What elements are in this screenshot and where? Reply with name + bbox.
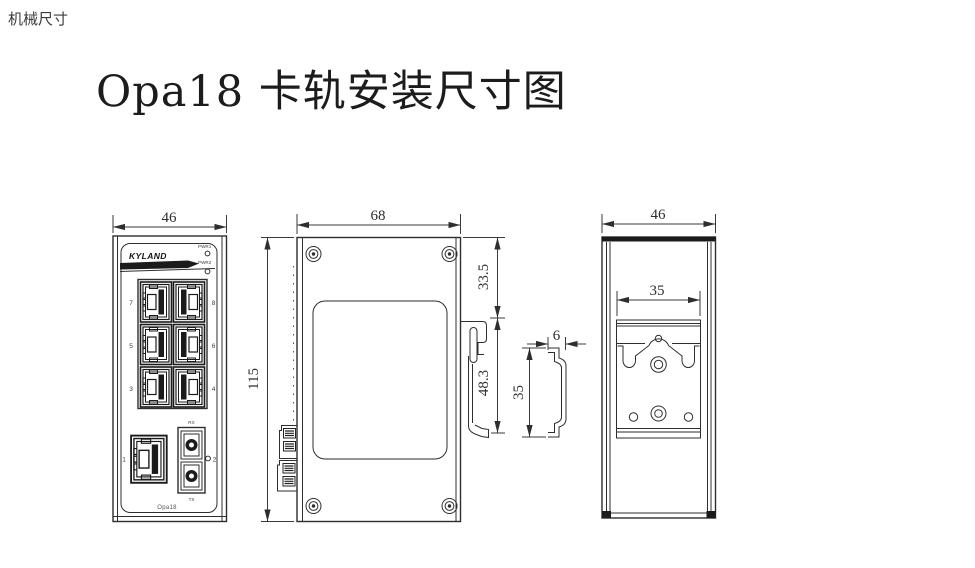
dim-rail-top-offset: 33.5 xyxy=(476,264,492,290)
clip-hole-icon xyxy=(684,413,692,421)
back-view xyxy=(602,237,716,518)
port-label-6: 6 xyxy=(212,343,216,350)
page-title: Opa18 卡轨安装尺寸图 xyxy=(96,67,567,117)
port-label-7: 7 xyxy=(129,300,133,307)
front-view: KYLAND PWR1 PWR2 7 8 5 6 3 4 1 xyxy=(113,236,227,522)
dim-front-width: 46 xyxy=(162,210,178,226)
screw-icon xyxy=(306,247,321,262)
model-label: Opa18 xyxy=(157,505,177,511)
side-view xyxy=(278,238,489,522)
fiber-sc-connector: RX TX xyxy=(178,420,205,502)
port-label-4: 4 xyxy=(212,386,216,393)
port-label-2: 2 xyxy=(213,457,217,464)
clip-screw-icon xyxy=(651,406,666,421)
rj45-port-grid: 7 8 5 6 3 4 xyxy=(129,280,216,409)
rj45-port-1-icon xyxy=(131,436,167,483)
clip-hole-icon xyxy=(629,413,637,421)
screw-icon xyxy=(306,499,321,514)
side-window xyxy=(313,301,447,459)
fiber-tx-label: TX xyxy=(189,497,195,502)
dim-side-width: 68 xyxy=(371,208,386,224)
led-pwr2-icon xyxy=(205,269,210,274)
dim-clip-height: 48.3 xyxy=(476,370,492,396)
rj45-port-8-icon xyxy=(174,282,205,322)
led-pwr2-label: PWR2 xyxy=(198,260,212,265)
rail-depth-dimension: 6 xyxy=(527,328,586,350)
port-label-8: 8 xyxy=(212,300,216,307)
port-label-3: 3 xyxy=(129,386,133,393)
rj45-port-6-icon xyxy=(174,325,205,365)
led-pwr1-label: PWR1 xyxy=(198,244,212,249)
side-body-outline xyxy=(297,238,461,522)
drawing-canvas: 机械尺寸 Opa18 卡轨安装尺寸图 KYLAND PWR1 PWR2 7 8 … xyxy=(0,0,975,568)
back-body-outline xyxy=(602,237,716,518)
led-pwr1-icon xyxy=(205,251,210,256)
mechanical-dimensions-page: 机械尺寸 Opa18 卡轨安装尺寸图 KYLAND PWR1 PWR2 7 8 … xyxy=(0,0,975,568)
back-width-dimension: 46 xyxy=(602,207,716,233)
fiber-rx-label: RX xyxy=(188,420,194,425)
front-width-dimension: 46 xyxy=(113,210,227,233)
side-width-dimension: 68 xyxy=(297,208,461,234)
screw-icon xyxy=(442,247,457,262)
rail-top-offset-dimension: 33.5 xyxy=(463,238,505,319)
rj45-port-4-icon xyxy=(174,367,205,407)
dim-side-height: 115 xyxy=(246,368,262,390)
side-connector-blocks xyxy=(278,426,298,492)
back-top-band xyxy=(602,237,716,242)
dim-back-width: 46 xyxy=(651,207,667,223)
clip-screw-icon xyxy=(651,357,667,373)
dim-rail-height: 35 xyxy=(511,385,527,400)
port-label-5: 5 xyxy=(129,343,133,350)
din-rail-profile xyxy=(548,348,566,437)
screw-icon xyxy=(442,499,457,514)
rj45-port-7-icon xyxy=(141,282,172,322)
dim-clip-width: 35 xyxy=(650,283,665,299)
page-header: 机械尺寸 xyxy=(8,11,68,28)
rj45-port-3-icon xyxy=(141,367,172,407)
dim-rail-depth: 6 xyxy=(553,328,561,344)
port-2-indicator-icon xyxy=(206,456,211,461)
clip-height-dimension: 48.3 xyxy=(476,318,505,433)
rj45-port-5-icon xyxy=(141,325,172,365)
rail-height-dimension: 35 xyxy=(511,348,546,437)
din-clip-back xyxy=(617,320,701,438)
label-band xyxy=(120,261,199,270)
clip-width-dimension: 35 xyxy=(617,283,700,316)
port-label-1: 1 xyxy=(122,457,126,464)
brand-logo: KYLAND xyxy=(129,251,167,261)
